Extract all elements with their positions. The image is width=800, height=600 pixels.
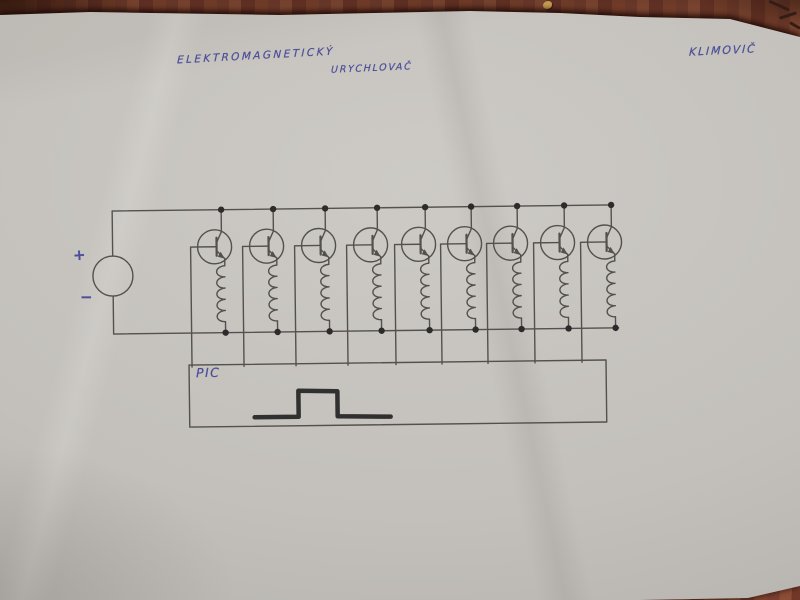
bottom-junction-dot bbox=[472, 326, 478, 332]
source-top-wire bbox=[112, 211, 113, 256]
base-drive-wire bbox=[243, 246, 270, 366]
coil bbox=[513, 262, 522, 318]
top-junction-dot bbox=[468, 203, 474, 209]
base-drive-wire bbox=[191, 247, 218, 367]
photo-of-hand-drawn-schematic: ELEKTROMAGNETICKÝ URYCHLOVAČ KLIMOVIČ + … bbox=[0, 0, 800, 600]
bottom-junction-dot bbox=[565, 325, 571, 331]
driver-stage-4 bbox=[346, 204, 389, 365]
driver-stage-5 bbox=[394, 204, 437, 365]
base-drive-wire bbox=[534, 243, 561, 363]
coil bbox=[560, 261, 569, 317]
coil bbox=[467, 263, 476, 319]
top-junction-dot bbox=[218, 206, 224, 212]
top-bus-wire bbox=[112, 205, 611, 211]
pic-box-label: PIC bbox=[196, 365, 221, 380]
coil bbox=[373, 264, 382, 320]
base-drive-wire bbox=[295, 245, 322, 365]
driver-stage-8 bbox=[533, 202, 576, 363]
top-junction-dot bbox=[374, 205, 380, 211]
driver-stage-2 bbox=[242, 206, 285, 367]
source-minus-label: − bbox=[80, 288, 93, 306]
coil bbox=[321, 264, 330, 320]
base-drive-wire bbox=[395, 244, 422, 364]
top-junction-dot bbox=[270, 206, 276, 212]
bottom-junction-dot bbox=[378, 328, 384, 334]
voltage-source bbox=[93, 256, 133, 296]
top-junction-dot bbox=[422, 204, 428, 210]
base-drive-wire bbox=[441, 244, 468, 364]
bottom-junction-dot bbox=[326, 328, 332, 334]
pulse-waveform bbox=[254, 390, 390, 419]
bottom-junction-dot bbox=[612, 325, 618, 331]
bottom-bus-wire bbox=[114, 328, 619, 334]
source-plus-label: + bbox=[72, 246, 86, 265]
base-drive-wire bbox=[347, 245, 374, 365]
circuit-diagram bbox=[0, 0, 800, 600]
coil bbox=[607, 261, 616, 317]
base-drive-wire bbox=[487, 243, 514, 363]
bottom-junction-dot bbox=[222, 329, 228, 335]
pic-box bbox=[189, 360, 607, 427]
driver-stage-7 bbox=[486, 203, 529, 364]
top-junction-dot bbox=[322, 205, 328, 211]
coil bbox=[217, 266, 226, 322]
base-drive-wire bbox=[581, 242, 608, 362]
top-junction-dot bbox=[514, 203, 520, 209]
coil bbox=[421, 263, 430, 319]
bottom-junction-dot bbox=[426, 327, 432, 333]
top-junction-dot bbox=[561, 202, 567, 208]
driver-stage-9 bbox=[580, 202, 623, 363]
driver-stage-6 bbox=[440, 203, 483, 364]
circuit-layer bbox=[92, 202, 624, 429]
driver-stage-3 bbox=[294, 205, 337, 366]
bottom-junction-dot bbox=[518, 326, 524, 332]
bottom-junction-dot bbox=[274, 329, 280, 335]
driver-stage-1 bbox=[190, 206, 233, 367]
top-junction-dot bbox=[608, 202, 614, 208]
coil bbox=[269, 265, 278, 321]
